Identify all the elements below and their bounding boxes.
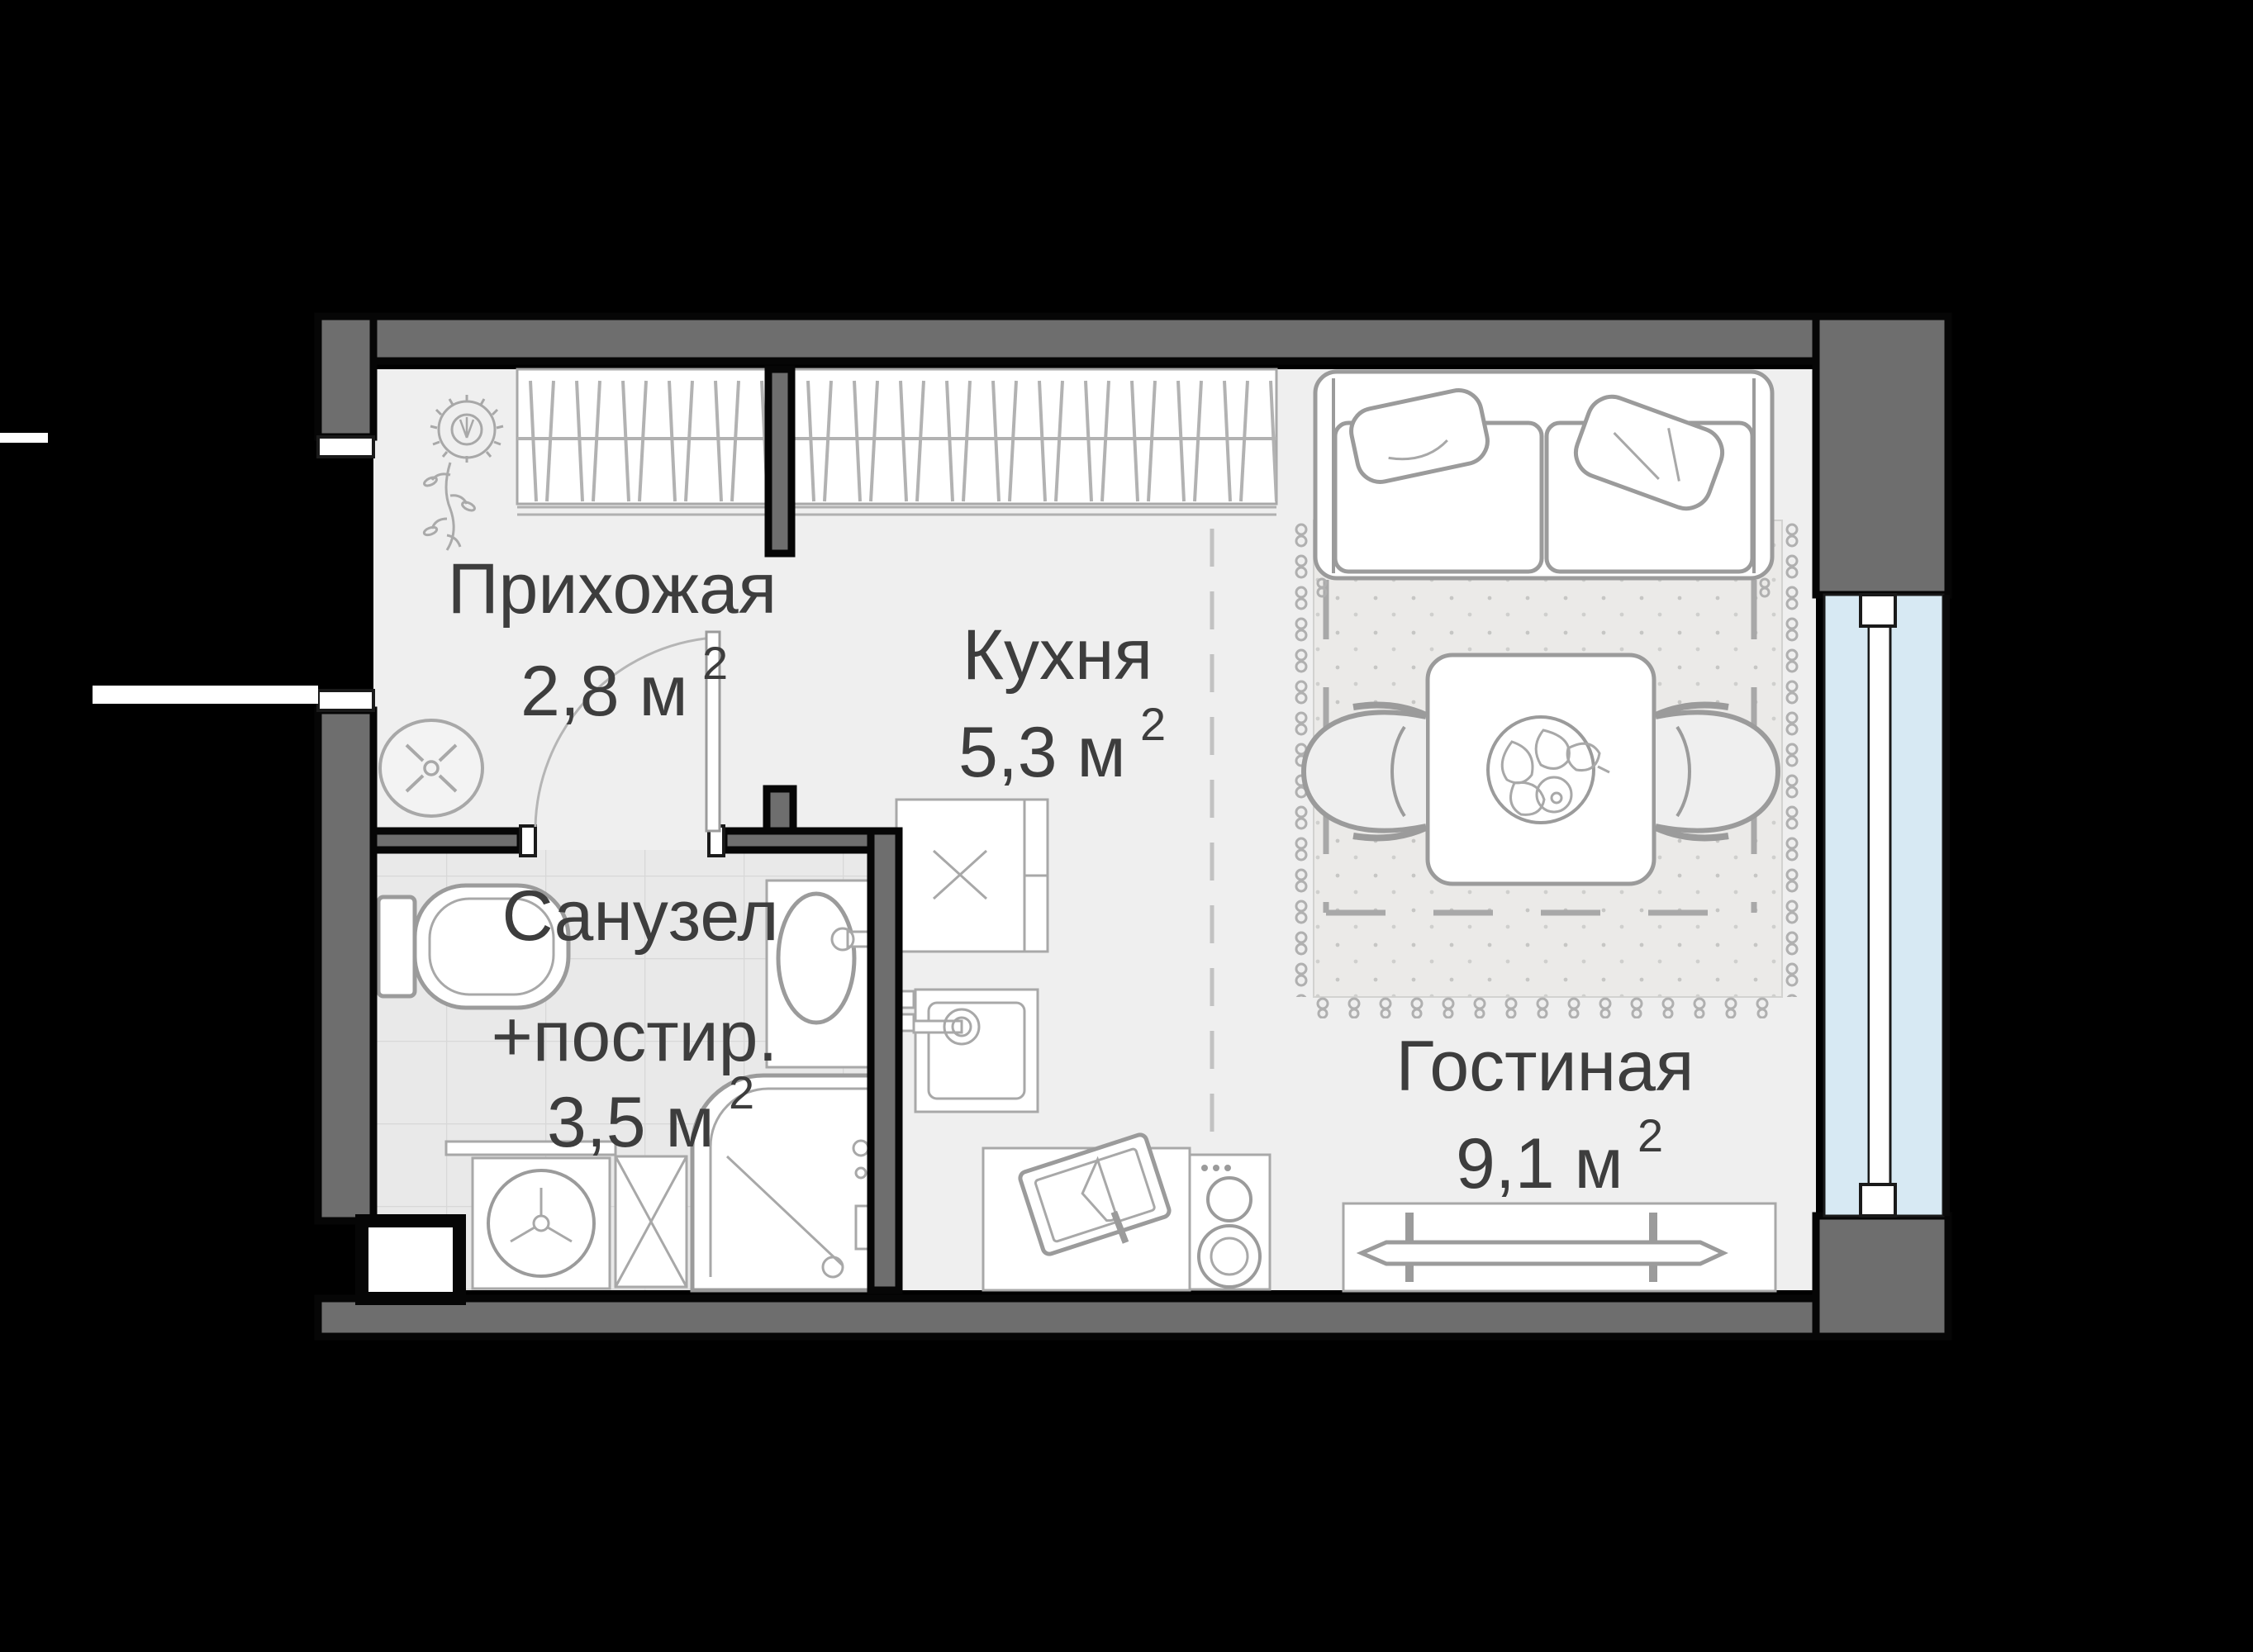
kitchen-upper-unit	[896, 800, 1048, 952]
room-area-bathroom: 3,5 м	[547, 1083, 715, 1162]
window-glass-inner	[1824, 595, 1869, 1216]
room-label-living: Гостиная	[1396, 1027, 1695, 1106]
washing-machine-icon	[473, 1158, 610, 1289]
entry-jamb-top	[318, 437, 373, 457]
wardrobe-hallway	[517, 369, 768, 515]
rug-fringe-right	[1782, 520, 1800, 997]
wall-stub-t	[767, 789, 793, 831]
window-outer-frame	[1943, 595, 1950, 1216]
window-band	[1824, 595, 1950, 1216]
wall-left-lower	[318, 710, 373, 1221]
room-area-living-sup: 2	[1637, 1109, 1663, 1161]
tv-console	[1343, 1203, 1775, 1291]
floor-plan-canvas: Прихожая 2,8 м 2 Кухня 5,3 м 2 Санузел +…	[0, 0, 2253, 1652]
room-label-kitchen: Кухня	[963, 615, 1153, 695]
rug-fringe-bottom	[1314, 997, 1782, 1018]
window-glass-outer	[1890, 595, 1943, 1216]
wall-left-upper	[318, 316, 373, 437]
window-sill-bottom	[1861, 1184, 1895, 1216]
wall-right-upper	[1816, 316, 1948, 595]
wall-tick-outside	[0, 433, 48, 443]
wall-top	[318, 316, 1948, 361]
wardrobe-kitchen	[791, 369, 1276, 515]
entry-door-leaf	[93, 686, 318, 704]
wall-bathroom-kitchen	[871, 831, 899, 1290]
duct-niche	[362, 1221, 459, 1298]
bathroom-cabinet	[616, 1156, 687, 1287]
kitchen-sink	[899, 990, 1038, 1112]
wall-bathroom-north-left	[373, 831, 520, 850]
wall-wardrobe-divider	[768, 369, 791, 553]
wall-bathroom-north-right	[724, 831, 871, 850]
stove	[1190, 1155, 1270, 1289]
room-label-bathroom-2: +постир.	[492, 997, 778, 1076]
room-area-bathroom-sup: 2	[729, 1066, 754, 1118]
entry-opening	[318, 457, 373, 691]
window-mullion	[1869, 595, 1890, 1216]
room-area-hallway: 2,8 м	[520, 652, 688, 731]
room-area-living: 9,1 м	[1456, 1124, 1623, 1203]
room-area-kitchen: 5,3 м	[958, 713, 1126, 792]
entry-jamb-bottom	[318, 691, 373, 710]
room-label-bathroom: Санузел	[501, 876, 778, 956]
vent-fan-icon	[380, 720, 482, 816]
bath-door-jamb-left	[520, 826, 535, 856]
sofa	[1315, 372, 1772, 596]
room-label-hallway: Прихожая	[448, 549, 777, 629]
bathroom-sink	[767, 881, 871, 1067]
wall-bottom	[318, 1298, 1948, 1336]
room-area-kitchen-sup: 2	[1140, 698, 1166, 750]
entry-door	[0, 433, 373, 710]
shower	[692, 1075, 871, 1290]
room-area-hallway-sup: 2	[702, 637, 728, 689]
wall-right-lower	[1816, 1216, 1948, 1336]
tv-icon	[1362, 1242, 1723, 1264]
window-sill-top	[1861, 595, 1895, 626]
dining-table	[1428, 655, 1654, 884]
